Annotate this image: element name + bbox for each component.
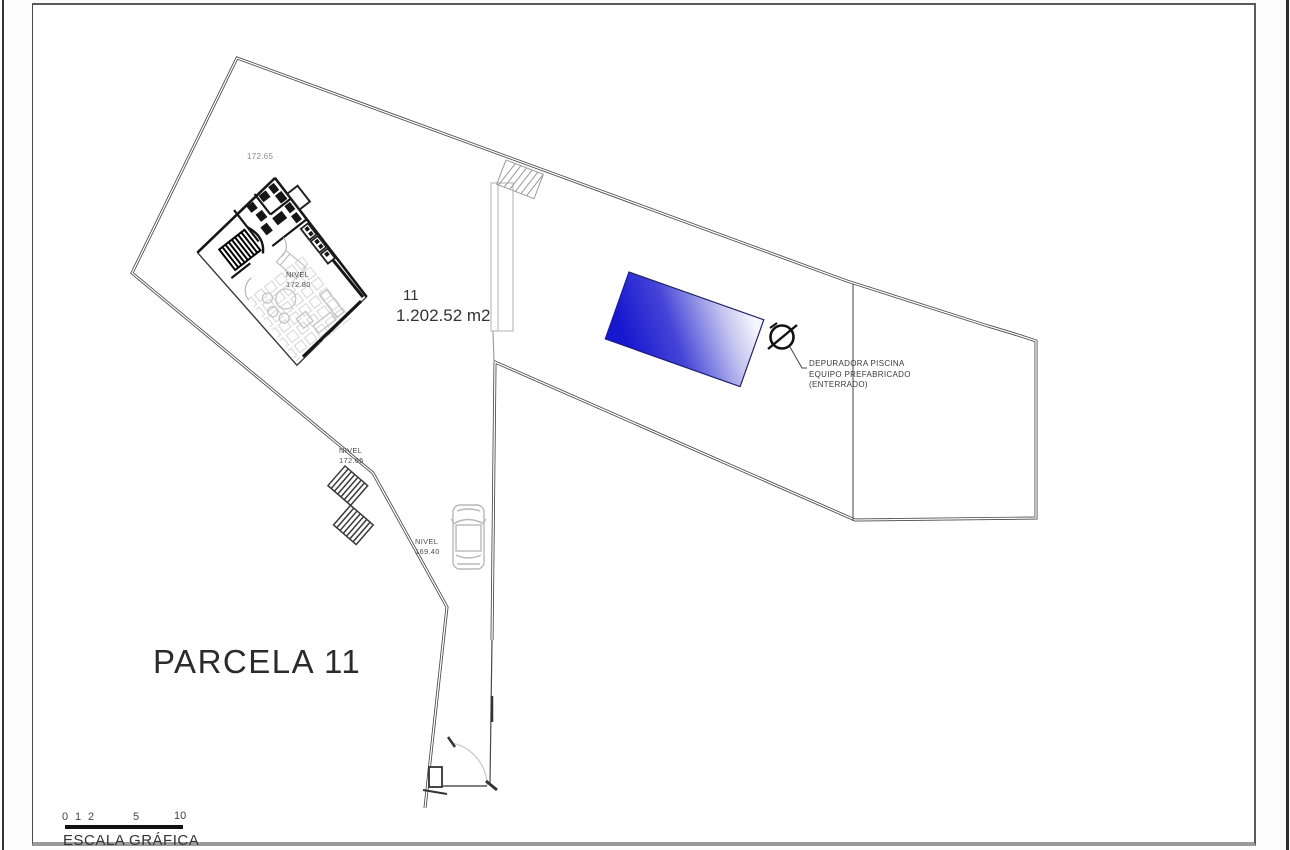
scale-caption: ESCALA GRÁFICA	[63, 832, 199, 849]
scale-number-1: 1	[75, 811, 81, 823]
scale-rule	[65, 825, 183, 829]
level-value: 169.40	[415, 547, 440, 557]
scale-number-5: 5	[133, 811, 139, 823]
car	[451, 505, 486, 569]
leader-line	[790, 347, 807, 368]
scale-number-10: 10	[174, 810, 186, 822]
level-label-house: NIVEL 172.80	[286, 270, 311, 289]
gate-swing-arc	[452, 743, 487, 786]
depuradora-symbol	[768, 323, 797, 349]
scale-number-2: 2	[88, 811, 94, 823]
scale-number-0: 0	[62, 811, 68, 823]
site-plan-page: 172.65 NIVEL 172.80 11 1.202.52 m2 NIVEL…	[0, 0, 1290, 850]
parcel-boundary	[132, 58, 1036, 808]
level-label-driveway: NIVEL 169.40	[415, 537, 440, 556]
note-line-3: (ENTERRADO)	[809, 380, 911, 391]
level-label-top: 172.65	[247, 152, 273, 161]
pool-equipment-note: DEPURADORA PISCINA EQUIPO PREFABRICADO (…	[809, 359, 911, 391]
note-line-1: DEPURADORA PISCINA	[809, 359, 911, 370]
level-word: NIVEL	[339, 446, 364, 456]
exterior-stairs	[311, 466, 390, 545]
gate-pillar	[429, 767, 442, 787]
note-line-2: EQUIPO PREFABRICADO	[809, 370, 911, 381]
retaining-wall	[491, 183, 513, 362]
level-value: 172.65	[339, 456, 364, 466]
level-word: NIVEL	[286, 270, 311, 280]
hatched-ramp	[497, 160, 544, 199]
level-value: 172.80	[286, 280, 311, 290]
level-word: NIVEL	[415, 537, 440, 547]
plan-linework	[0, 0, 1290, 850]
parcel-title: PARCELA 11	[153, 643, 361, 681]
plot-number: 11	[403, 287, 419, 304]
entrance-gate	[423, 737, 497, 794]
pool	[605, 272, 763, 387]
level-label-stairs: NIVEL 172.65	[339, 446, 364, 465]
plot-area: 1.202.52 m2	[396, 306, 491, 326]
